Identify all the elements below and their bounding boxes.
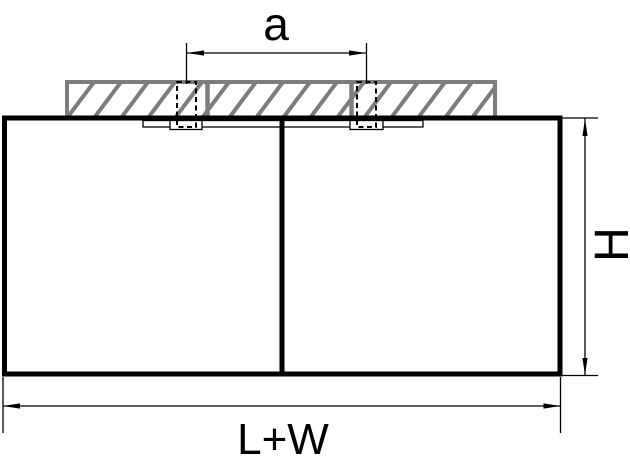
fixture-body <box>5 118 561 374</box>
dimension-lw: L+W <box>3 377 561 464</box>
dim-a-arrow-left <box>187 50 204 55</box>
dimension-h: H <box>562 118 630 376</box>
dimension-drawing: a L+W H <box>0 0 630 471</box>
dim-a-label: a <box>263 0 289 50</box>
ceiling-hatch-strip <box>67 82 495 118</box>
ceiling-section <box>67 82 495 118</box>
dim-lw-arrow-right <box>544 403 561 408</box>
drawing-canvas: a L+W H <box>0 0 630 471</box>
dim-h-arrow-top <box>582 119 587 136</box>
dimension-a: a <box>187 0 367 84</box>
dim-a-arrow-right <box>349 50 366 55</box>
dim-lw-label: L+W <box>237 415 329 464</box>
mounting-plate-notch-right <box>350 121 383 130</box>
dim-h-arrow-bottom <box>582 358 587 375</box>
dim-h-label: H <box>586 227 630 262</box>
mounting-plate-notch-left <box>170 121 202 130</box>
dim-lw-arrow-left <box>3 403 20 408</box>
